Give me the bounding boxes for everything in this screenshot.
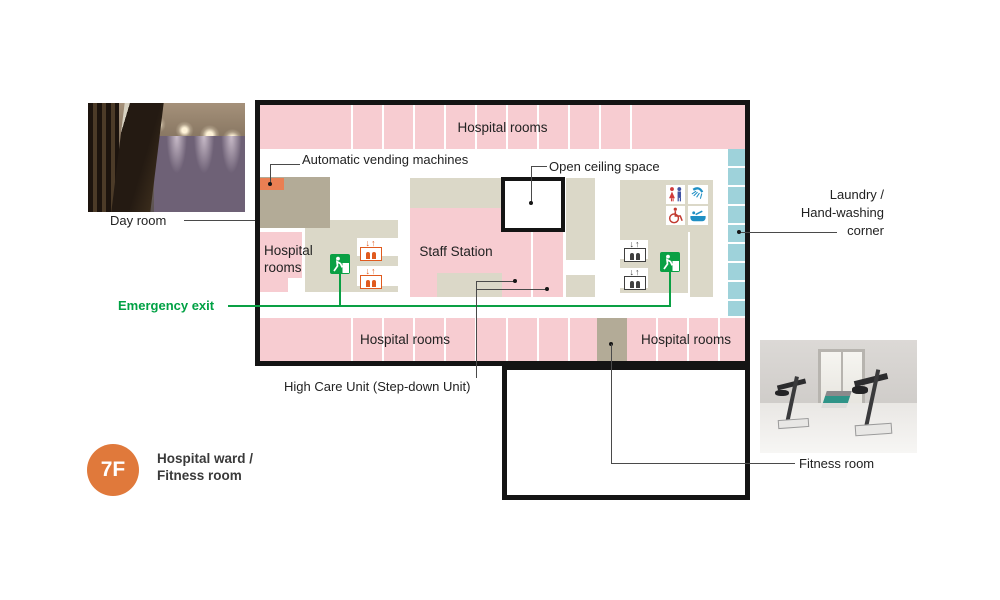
open-ceiling-label: Open ceiling space (549, 159, 660, 175)
fitness-room-photo (760, 340, 917, 453)
high-care-pointer-dot1 (513, 279, 517, 283)
day-room-label: Day room (110, 213, 166, 229)
vending-pointer-v (270, 164, 271, 184)
high-care-pointer-h2 (476, 289, 547, 290)
corridor-pink-under-ceiling (502, 232, 563, 297)
hospital-rooms-top-label: Hospital rooms (260, 105, 745, 149)
emergency-exit-line-v1 (339, 274, 341, 307)
high-care-label: High Care Unit (Step-down Unit) (284, 379, 470, 395)
fitness-pointer-v (611, 344, 612, 463)
accessible-icon (666, 206, 685, 225)
emergency-exit-icon-right (660, 252, 680, 272)
vending-pointer-dot (268, 182, 272, 186)
open-ceiling-space (501, 177, 565, 232)
elevator-car-icon (360, 247, 382, 261)
mid-zone-top (410, 178, 502, 208)
laundry-pointer-dot (737, 230, 741, 234)
elevator-arrows-icon: ↓↑ (624, 268, 646, 276)
mid-zone-right-col (566, 178, 595, 260)
emergency-exit-icon-left (330, 254, 350, 274)
open-ceiling-pointer-h (531, 166, 547, 167)
staff-station-label: Staff Station (410, 244, 502, 259)
mid-zone-bottom (437, 273, 502, 297)
fitness-room-label: Fitness room (799, 456, 874, 472)
hospital-rooms-bottom-left-label: Hospital rooms (260, 318, 550, 361)
day-room-photo (88, 103, 245, 212)
vending-machine-block (260, 178, 284, 190)
floor-badge: 7F (87, 444, 139, 496)
high-care-pointer-v (476, 281, 477, 378)
elevator-icon-gray-1: ↓↑ (624, 240, 646, 262)
elevator-arrows-icon: ↓↑ (624, 240, 646, 248)
fitness-photo-bike-left (774, 376, 809, 428)
day-room-wall (154, 136, 245, 212)
high-care-pointer-h1 (476, 281, 515, 282)
elevator-car-icon (624, 276, 646, 290)
laundry-pointer-h (740, 232, 837, 233)
floor-title: Hospital ward / Fitness room (157, 450, 253, 484)
elevator-car-icon (360, 275, 382, 289)
fitness-pointer-h (611, 463, 795, 464)
floor-badge-label: 7F (101, 458, 126, 482)
vending-pointer-h (271, 164, 300, 165)
toilet-icon (666, 185, 685, 204)
fitness-room-shaft (597, 318, 627, 361)
hospital-rooms-left-label: Hospital rooms (264, 242, 313, 276)
elevator-arrows-icon: ↓↑ (360, 239, 382, 247)
fitness-room-extension (502, 365, 750, 500)
right-zone-col (690, 232, 713, 297)
emergency-exit-line-h (228, 305, 671, 307)
hospital-rooms-bottom-right-label: Hospital rooms (627, 318, 745, 361)
open-ceiling-pointer-v (531, 166, 532, 203)
high-care-pointer-dot2 (545, 287, 549, 291)
elevator-icon-orange-2: ↓↑ (360, 267, 382, 289)
corridor-divider (531, 232, 533, 297)
elevator-icon-gray-2: ↓↑ (624, 268, 646, 290)
mid-zone-right-col-lower (566, 275, 595, 297)
fitness-photo-bike-right (851, 369, 892, 435)
elevator-car-icon (624, 248, 646, 262)
elevator-icon-orange-1: ↓↑ (360, 239, 382, 261)
staff-station-zone-lower-left (410, 273, 437, 297)
hospital-rooms-left-step (260, 278, 288, 292)
vending-label: Automatic vending machines (302, 152, 468, 168)
staff-station-zone (410, 208, 502, 273)
elevator-arrows-icon: ↓↑ (360, 267, 382, 275)
bath-icon (688, 206, 708, 225)
floor-guide-page: Day room Hospital rooms Hospital rooms ↓… (0, 0, 1000, 600)
shower-icon (688, 185, 708, 204)
open-ceiling-pointer-dot (529, 201, 533, 205)
emergency-exit-label: Emergency exit (118, 298, 214, 314)
emergency-exit-line-v2 (669, 272, 671, 307)
